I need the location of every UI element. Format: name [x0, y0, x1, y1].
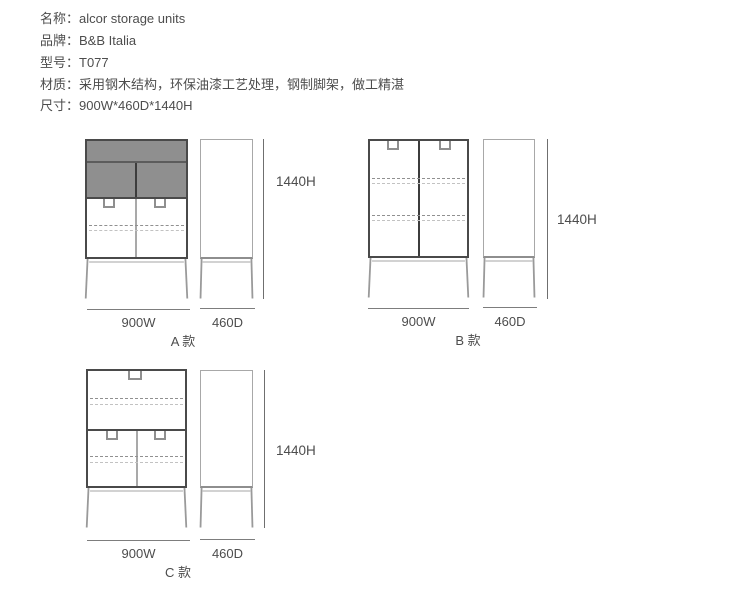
leg-line	[533, 258, 534, 298]
cabinet-a-side-legs	[200, 259, 253, 299]
depth-dimension-line	[483, 307, 537, 308]
height-dimension-label: 1440H	[276, 443, 316, 458]
shelf-dashed-line	[90, 456, 183, 457]
leg-line	[251, 488, 252, 528]
spec-sheet: 名称：alcor storage units 品牌：B&B Italia 型号：…	[0, 0, 750, 592]
width-dimension-line	[87, 540, 190, 541]
cabinet-c-side-legs	[200, 488, 253, 528]
variant-label-a: A 款	[150, 331, 216, 350]
cabinet-a-front-legs	[85, 259, 188, 299]
shelf-dashed-line	[89, 230, 184, 231]
cabinet-a-upper-doors	[87, 163, 186, 199]
height-dimension-label: 1440H	[557, 212, 597, 227]
upper-door-divider	[135, 163, 137, 197]
depth-dimension-line	[200, 539, 255, 540]
height-dimension-line	[264, 370, 265, 528]
shelf-dashed-line	[90, 404, 183, 405]
shelf-dashed-line	[90, 398, 183, 399]
door-handle	[439, 141, 451, 150]
cabinet-c-front-view	[86, 369, 187, 488]
shelf-dashed-line	[90, 462, 183, 463]
depth-dimension-label: 460D	[483, 314, 537, 329]
depth-dimension-label: 460D	[200, 315, 255, 330]
leg-line	[484, 258, 485, 298]
spec-name: 名称：alcor storage units	[40, 11, 185, 27]
variant-label-b: B 款	[435, 330, 501, 349]
cabinet-c-side-view	[200, 370, 253, 488]
lower-door-divider	[135, 199, 137, 257]
cabinet-b-front-legs	[368, 258, 469, 298]
width-dimension-line	[87, 309, 190, 310]
height-dimension-line	[547, 139, 548, 299]
width-dimension-label: 900W	[368, 314, 469, 329]
leg-line	[184, 488, 186, 528]
variant-label-c: C 款	[145, 562, 211, 581]
door-handle	[106, 431, 118, 440]
door-divider	[418, 141, 420, 256]
height-dimension-line	[263, 139, 264, 299]
depth-dimension-label: 460D	[200, 546, 255, 561]
width-dimension-label: 900W	[87, 315, 190, 330]
cabinet-a-front-view	[85, 139, 188, 259]
leg-line	[466, 258, 468, 298]
leg-line	[87, 488, 89, 528]
spec-model: 型号：T077	[40, 55, 109, 71]
leg-line	[185, 259, 187, 299]
leg-line	[251, 259, 252, 299]
leg-line	[201, 259, 202, 299]
spec-dimensions: 尺寸：900W*460D*1440H	[40, 98, 192, 114]
leg-line	[86, 259, 88, 299]
door-handle	[103, 199, 115, 208]
width-dimension-label: 900W	[87, 546, 190, 561]
shelf-dashed-line	[372, 220, 465, 221]
shelf-dashed-line	[372, 178, 465, 179]
cabinet-b-side-legs	[483, 258, 535, 298]
lower-door-divider	[136, 431, 138, 486]
height-dimension-label: 1440H	[276, 174, 316, 189]
depth-dimension-line	[200, 308, 255, 309]
spec-material: 材质：采用钢木结构，环保油漆工艺处理，钢制脚架，做工精湛	[40, 77, 404, 93]
door-handle	[154, 199, 166, 208]
leg-line	[201, 488, 202, 528]
leg-line	[369, 258, 371, 298]
door-handle	[387, 141, 399, 150]
cabinet-c-front-legs	[86, 488, 187, 528]
shelf-dashed-line	[89, 225, 184, 226]
shelf-dashed-line	[372, 183, 465, 184]
cabinet-b-front-view	[368, 139, 469, 258]
cabinet-b-side-view	[483, 139, 535, 258]
shelf-dashed-line	[372, 215, 465, 216]
spec-brand: 品牌：B&B Italia	[40, 33, 136, 49]
cabinet-a-top-drawer	[87, 141, 186, 163]
door-handle	[154, 431, 166, 440]
width-dimension-line	[368, 308, 469, 309]
cabinet-a-side-view	[200, 139, 253, 259]
door-handle	[128, 371, 142, 380]
